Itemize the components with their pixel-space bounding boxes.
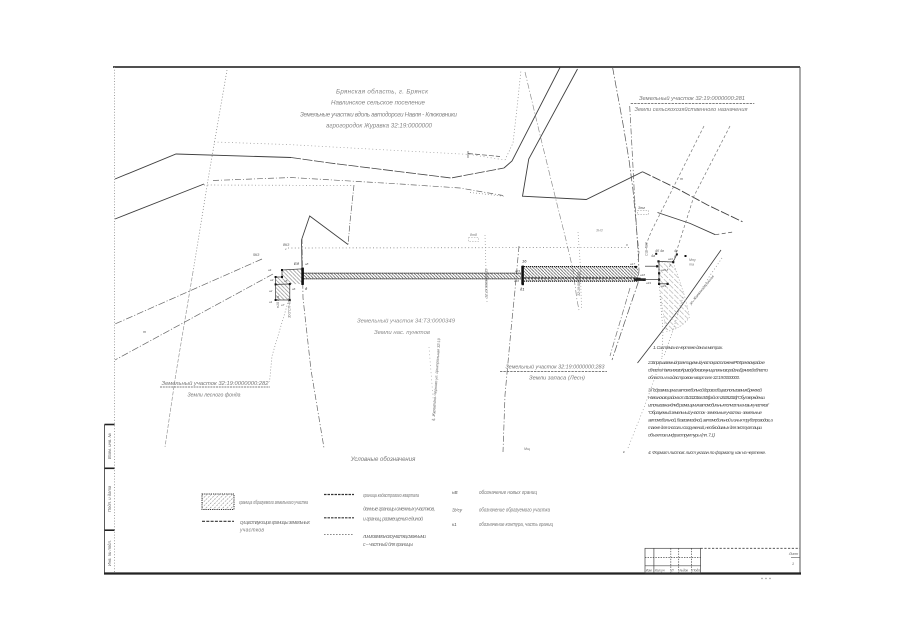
svg-text:н1: н1 bbox=[269, 300, 273, 304]
svg-text:Изм: Изм bbox=[646, 569, 653, 573]
svg-text:н3: н3 bbox=[270, 278, 274, 282]
svg-text:использования для В размещения: использования для В размещения автомобил… bbox=[648, 403, 769, 408]
svg-text:обозначение новых границ: обозначение новых границ bbox=[479, 490, 537, 496]
svg-text:Земли сельскохозяйственного на: Земли сельскохозяйственного назначения bbox=[635, 106, 748, 113]
svg-text:та: та bbox=[689, 263, 694, 267]
svg-text:Подп: Подп bbox=[692, 569, 700, 573]
svg-text:32:19:0000000: 32:19:0000000 bbox=[577, 272, 581, 296]
svg-text:Земельный участок 34:ТЗ:000034: Земельный участок 34:ТЗ:0000349 bbox=[357, 318, 455, 325]
svg-text:н7: н7 bbox=[281, 303, 285, 307]
svg-text:Брянская область, г. Брянск: Брянская область, г. Брянск bbox=[336, 89, 429, 96]
svg-text:Мну: Мну bbox=[689, 258, 696, 262]
svg-text:Земельные участки вдоль автодо: Земельные участки вдоль автодороги Навля… bbox=[300, 112, 458, 119]
svg-text:Взам. инв. №: Взам. инв. № bbox=[107, 433, 112, 459]
svg-text:существующие границы земельных: существующие границы земельных bbox=[240, 520, 311, 526]
svg-text:с – частный для границы: с – частный для границы bbox=[363, 541, 413, 548]
svg-text:т: т bbox=[143, 330, 146, 334]
svg-text:д: д bbox=[305, 286, 308, 291]
svg-text:н10 н11: н10 н11 bbox=[276, 295, 280, 308]
svg-text:н19: н19 bbox=[646, 281, 651, 285]
svg-text:8т8: 8т8 bbox=[470, 233, 477, 237]
svg-text:также для сносов и сооружений,: также для сносов и сооружений, необходим… bbox=[648, 424, 762, 430]
svg-text:Земельный участок 32:19:000000: Земельный участок 32:19:0000000:283 bbox=[506, 364, 606, 371]
svg-text:Земли запаса (Лесн): Земли запаса (Лесн) bbox=[529, 376, 585, 382]
svg-text:Подп. и дата: Подп. и дата bbox=[107, 485, 112, 512]
svg-text:Кол.уч: Кол.уч bbox=[655, 569, 665, 573]
svg-text:Инв. № подл.: Инв. № подл. bbox=[107, 540, 112, 566]
svg-text:участков: участков bbox=[239, 528, 264, 534]
svg-text:н15: н15 bbox=[515, 269, 520, 273]
svg-text:автомобильной, безвозмездной,: автомобильной, безвозмездной, автомобиль… bbox=[648, 417, 773, 423]
svg-text:ЗУ2'СП-4БЗ: ЗУ2'СП-4БЗ bbox=[288, 297, 292, 318]
svg-text:обозначение образуемого участк: обозначение образуемого участка bbox=[479, 508, 550, 514]
svg-text:2. Запрашиваемый проектируемый: 2. Запрашиваемый проектируемый участок р… bbox=[647, 359, 765, 365]
svg-text:5КЗ: 5КЗ bbox=[253, 253, 260, 257]
svg-text:Ед: Ед bbox=[294, 261, 300, 266]
svg-text:объектов инфраструктуры (пп. 7: объектов инфраструктуры (пп. 7.1) bbox=[648, 433, 715, 438]
svg-text:№док: №док bbox=[680, 569, 689, 573]
svg-text:н2: н2 bbox=[269, 289, 273, 293]
svg-text:3. Под размещение автомобильно: 3. Под размещение автомобильной дороги о… bbox=[648, 387, 762, 393]
svg-text:т: т bbox=[680, 177, 683, 181]
svg-text:Земли лесного фонда: Земли лесного фонда bbox=[188, 393, 241, 399]
svg-text:н8: н8 bbox=[305, 262, 309, 266]
svg-text:области Навлинского Криводубск: области Навлинского Криводубского муници… bbox=[648, 367, 768, 373]
svg-text:н22: н22 bbox=[668, 257, 673, 261]
svg-text:1. Система на чертеже дана в м: 1. Система на чертеже дана в метрах. bbox=[653, 345, 723, 350]
svg-text:4г: 4г bbox=[674, 249, 678, 253]
svg-text:4б 4в: 4б 4в bbox=[655, 249, 664, 253]
svg-text:д. Журавлино-Чёрново ул. Центр: д. Журавлино-Чёрново ул. Центральная 32:… bbox=[432, 337, 442, 421]
svg-text:х: х bbox=[284, 247, 287, 251]
svg-text:н21: н21 bbox=[661, 284, 666, 288]
svg-text:32:19:0000000:15: 32:19:0000000:15 bbox=[485, 269, 489, 298]
svg-text:Зюг: Зюг bbox=[638, 206, 645, 210]
svg-text:н6: н6 bbox=[292, 287, 296, 291]
svg-text:16: 16 bbox=[522, 259, 527, 264]
svg-text:х: х bbox=[625, 243, 628, 247]
svg-text:области в кадастровом квартале: области в кадастровом квартале 32:19:000… bbox=[648, 375, 740, 380]
svg-text:Навлинского района от 31.03.20: Навлинского района от 31.03.2016 в 343 (… bbox=[648, 394, 765, 400]
svg-text:д1: д1 bbox=[520, 287, 524, 292]
svg-text:Л: Л bbox=[670, 569, 674, 573]
svg-text:нВ: нВ bbox=[452, 490, 458, 495]
svg-text:4а: 4а bbox=[651, 254, 655, 258]
svg-text:граница кадастрового квартала: граница кадастрового квартала bbox=[363, 493, 419, 499]
svg-text:н18: н18 bbox=[640, 273, 645, 277]
svg-text:н20: н20 bbox=[661, 268, 666, 272]
svg-text:Лист: Лист bbox=[788, 552, 798, 556]
svg-text:Земельный участок 32:19:000000: Земельный участок 32:19:0000000:282 bbox=[162, 380, 270, 387]
svg-text:4. Формат листов: лист указан: 4. Формат листов: лист указан по формату… bbox=[648, 450, 766, 455]
svg-text:н4: н4 bbox=[268, 268, 272, 272]
svg-text:н16: н16 bbox=[514, 279, 519, 283]
svg-text:данные границы смежных участко: данные границы смежных участков, bbox=[363, 507, 435, 513]
svg-text:к: к bbox=[623, 450, 625, 454]
svg-text:граница образуемого земельного: граница образуемого земельного участка bbox=[239, 500, 308, 506]
svg-text:СШ-4БЗ: СШ-4БЗ bbox=[645, 242, 649, 256]
svg-text:Мщ: Мщ bbox=[524, 447, 530, 451]
svg-text:ЗУсу: ЗУсу bbox=[452, 508, 463, 513]
svg-text:н5: н5 bbox=[284, 279, 288, 283]
svg-text:обозначение контура, часть гра: обозначение контура, часть границ bbox=[479, 522, 553, 528]
svg-text:3Н3: 3Н3 bbox=[596, 229, 603, 233]
svg-text:к1: к1 bbox=[452, 522, 457, 527]
svg-text:"Образуемый земельный участок: "Образуемый земельный участок - земельны… bbox=[648, 409, 762, 415]
svg-text:Условные обозначения: Условные обозначения bbox=[350, 457, 416, 463]
svg-text:Земли нас. пунктов: Земли нас. пунктов bbox=[374, 330, 430, 336]
svg-text:1: 1 bbox=[792, 562, 794, 566]
svg-text:линия земельного участка, смеж: линия земельного участка, смежными bbox=[362, 534, 426, 540]
svg-text:н17: н17 bbox=[630, 262, 635, 266]
svg-text:и границ, размещения единой: и границ, размещения единой bbox=[363, 516, 423, 523]
svg-text:Навлинское сельское поселение: Навлинское сельское поселение bbox=[331, 100, 426, 107]
svg-text:агрогородок Журавка 32:19:0000: агрогородок Журавка 32:19:0000000 bbox=[326, 123, 433, 130]
svg-text:Земельный участок 32:19:000000: Земельный участок 32:19:0000000:281 bbox=[639, 95, 745, 102]
